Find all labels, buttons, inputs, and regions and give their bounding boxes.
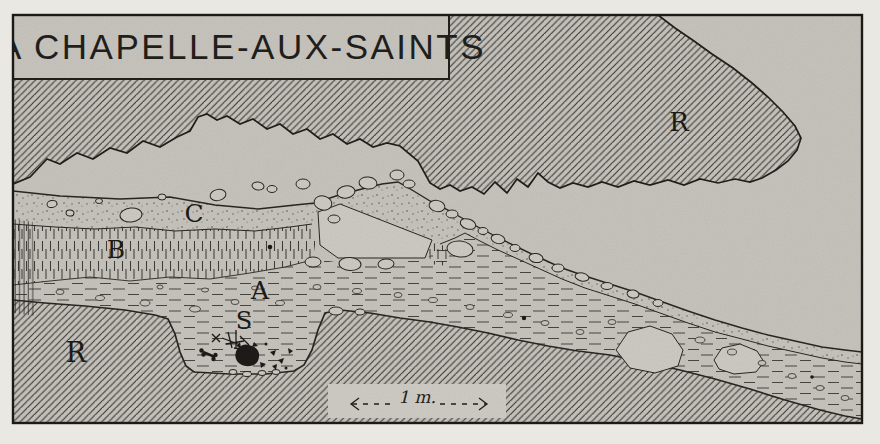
lower-rock-label: R (66, 337, 87, 368)
upper-rock-label: R (669, 107, 690, 137)
burial-label: S (236, 307, 252, 335)
layer-c-label: C (184, 199, 203, 228)
background-texture (13, 15, 862, 423)
layer-a-label: A (250, 276, 270, 305)
engraved-figure: LA CHAPELLE-AUX-SAINTS 1 m. R C B A S R (0, 0, 880, 444)
section-drawing: LA CHAPELLE-AUX-SAINTS 1 m. R C B A S R (0, 0, 880, 444)
layer-b-label: B (107, 235, 125, 264)
